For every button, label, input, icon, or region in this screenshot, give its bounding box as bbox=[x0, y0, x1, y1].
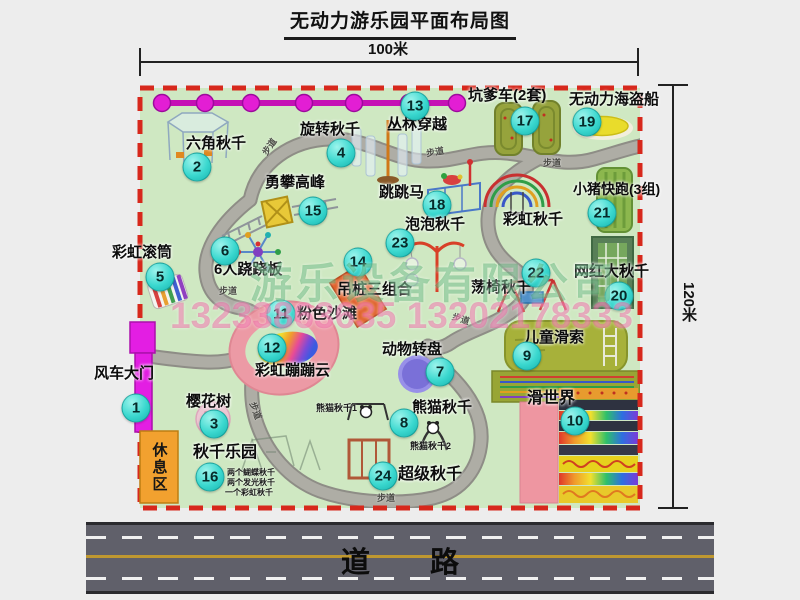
windmill-gate-icon bbox=[130, 322, 155, 432]
watermark-phone: 13233863635 13202178333 bbox=[170, 295, 633, 337]
road-label: 道 路 bbox=[86, 539, 714, 581]
page-title: 无动力游乐园平面布局图 bbox=[0, 6, 800, 40]
pirate-ship-icon bbox=[573, 116, 633, 140]
dimension-width-label: 100米 bbox=[368, 38, 408, 59]
animal-turntable-icon bbox=[398, 355, 436, 393]
page-title-text: 无动力游乐园平面布局图 bbox=[284, 6, 516, 40]
piggy-run-icon bbox=[597, 168, 632, 232]
dimension-height-label: 120米 bbox=[678, 282, 699, 322]
road: 道 路 bbox=[86, 522, 714, 594]
playground-layout-map: 道 路 无动力游乐园平面布局图 100米 120米 休息区 游乐设备有限公司 1… bbox=[0, 0, 800, 600]
rest-area-label: 休息区 bbox=[141, 434, 177, 500]
cherry-tree-icon bbox=[196, 402, 230, 436]
